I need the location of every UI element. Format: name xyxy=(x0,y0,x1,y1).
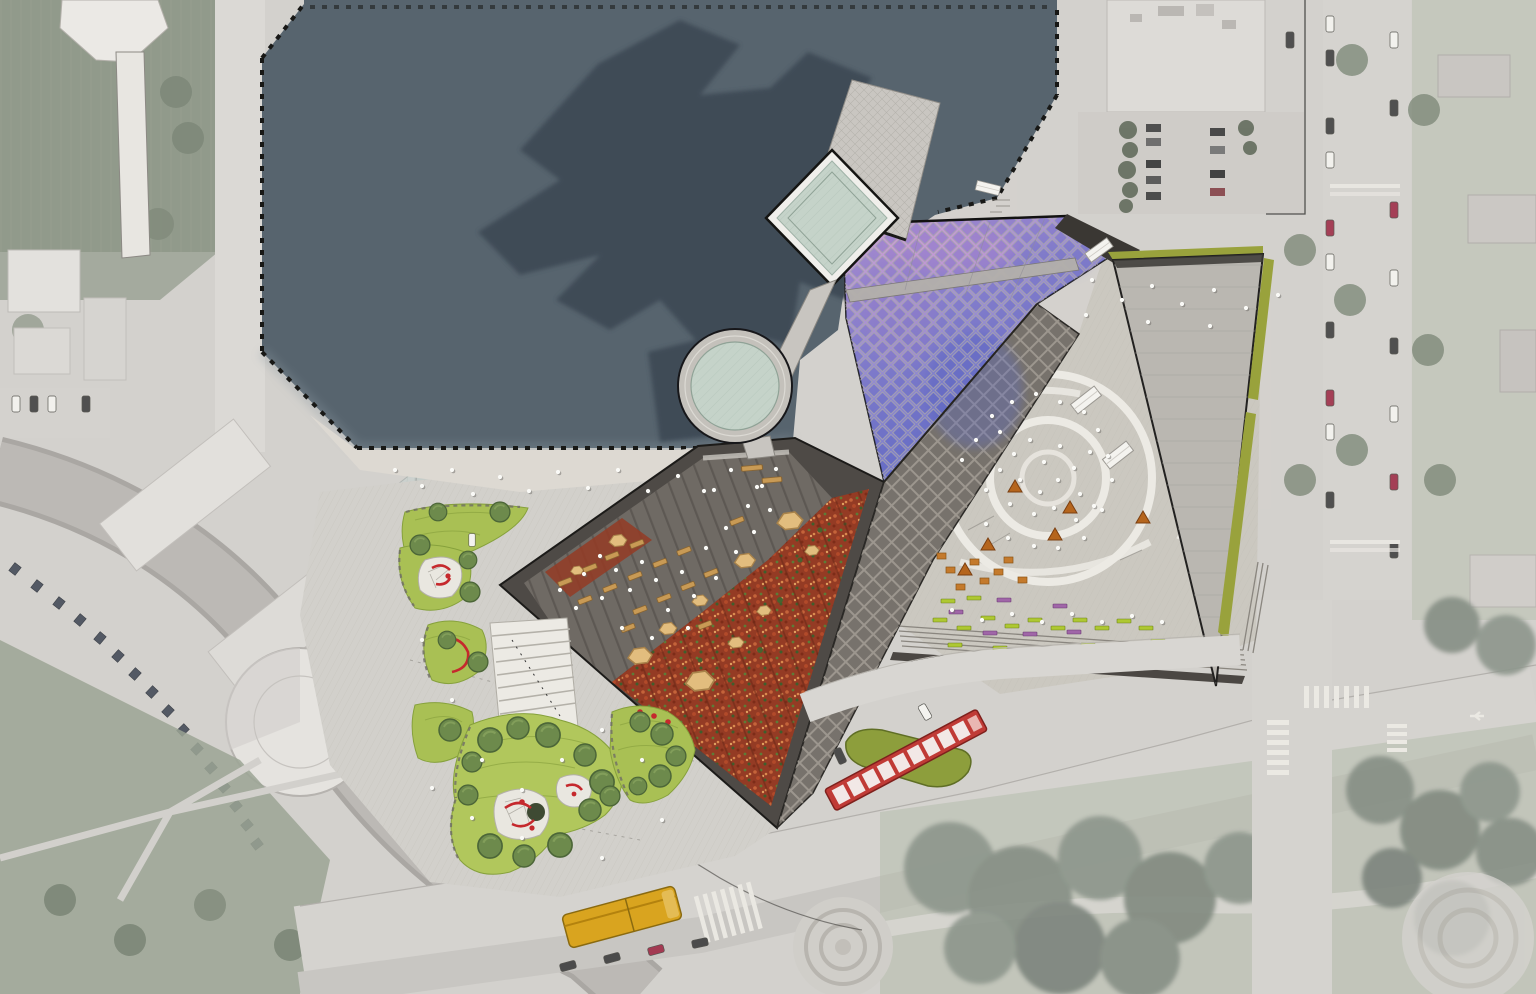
site-plan-rendering xyxy=(0,0,1536,994)
roundabout-plaza xyxy=(793,897,893,994)
site-plan-canvas xyxy=(0,0,1536,994)
parking-lot xyxy=(1078,112,1304,214)
white-path xyxy=(116,52,150,258)
round-glass-oculus xyxy=(678,329,792,443)
southeast-vertical-street xyxy=(1252,600,1332,994)
grand-stair xyxy=(490,618,578,730)
